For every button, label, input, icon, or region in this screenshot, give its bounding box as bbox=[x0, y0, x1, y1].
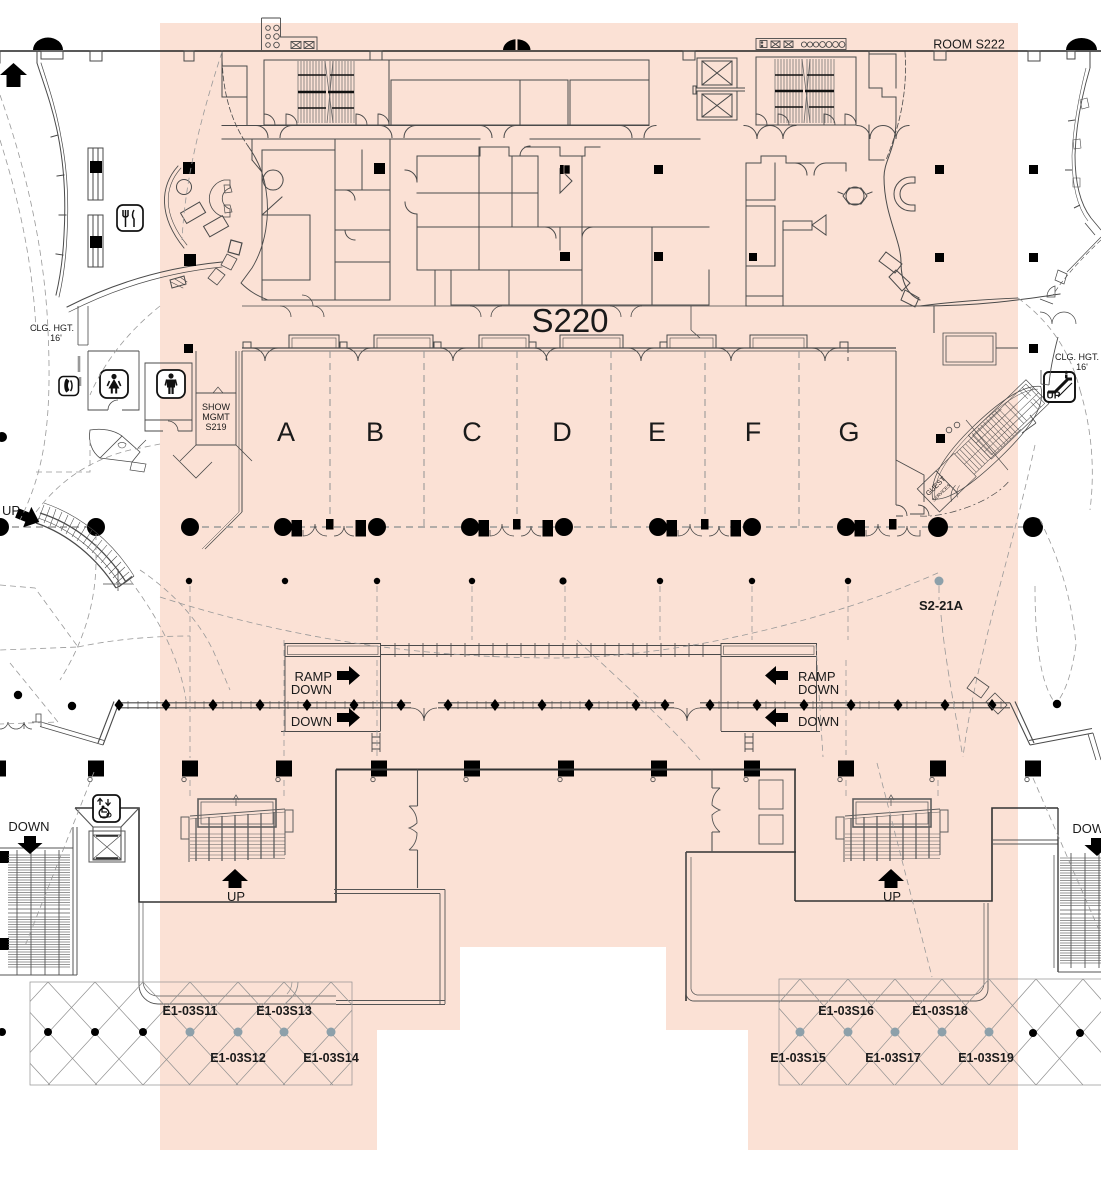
svg-text:CLG. HGT.: CLG. HGT. bbox=[1055, 352, 1099, 362]
svg-text:E1-03S14: E1-03S14 bbox=[303, 1051, 359, 1065]
svg-text:UP: UP bbox=[2, 503, 20, 518]
svg-text:F: F bbox=[745, 417, 762, 447]
svg-text:E1-03S12: E1-03S12 bbox=[210, 1051, 266, 1065]
svg-text:E1-03S16: E1-03S16 bbox=[818, 1004, 874, 1018]
svg-text:16': 16' bbox=[50, 333, 62, 343]
svg-text:DOWN: DOWN bbox=[291, 714, 332, 729]
svg-text:UP: UP bbox=[883, 889, 901, 904]
svg-text:SHOW: SHOW bbox=[202, 402, 231, 412]
svg-text:E1-03S15: E1-03S15 bbox=[770, 1051, 826, 1065]
svg-text:A: A bbox=[277, 417, 295, 447]
svg-text:D: D bbox=[552, 417, 572, 447]
svg-text:DOWN: DOWN bbox=[798, 714, 839, 729]
svg-text:S2-21A: S2-21A bbox=[919, 598, 964, 613]
svg-text:MGMT: MGMT bbox=[202, 412, 230, 422]
svg-text:E1-03S19: E1-03S19 bbox=[958, 1051, 1014, 1065]
svg-text:DOWN: DOWN bbox=[798, 682, 839, 697]
svg-text:DOWN: DOWN bbox=[291, 682, 332, 697]
svg-text:B: B bbox=[366, 417, 384, 447]
svg-text:G: G bbox=[838, 417, 859, 447]
svg-text:DOWN: DOWN bbox=[8, 819, 49, 834]
svg-text:DOWN: DOWN bbox=[1072, 821, 1101, 836]
svg-text:E1-03S11: E1-03S11 bbox=[163, 1004, 218, 1018]
svg-text:S220: S220 bbox=[531, 302, 608, 339]
svg-text:E1-03S13: E1-03S13 bbox=[256, 1004, 312, 1018]
svg-text:CLG. HGT.: CLG. HGT. bbox=[30, 323, 74, 333]
svg-text:E: E bbox=[648, 417, 666, 447]
svg-text:UP: UP bbox=[227, 889, 245, 904]
svg-text:16': 16' bbox=[1076, 362, 1088, 372]
svg-text:E1-03S17: E1-03S17 bbox=[865, 1051, 921, 1065]
svg-text:S219: S219 bbox=[205, 422, 226, 432]
svg-text:E1-03S18: E1-03S18 bbox=[912, 1004, 968, 1018]
svg-text:ROOM S222: ROOM S222 bbox=[933, 38, 1005, 52]
svg-text:C: C bbox=[462, 417, 482, 447]
